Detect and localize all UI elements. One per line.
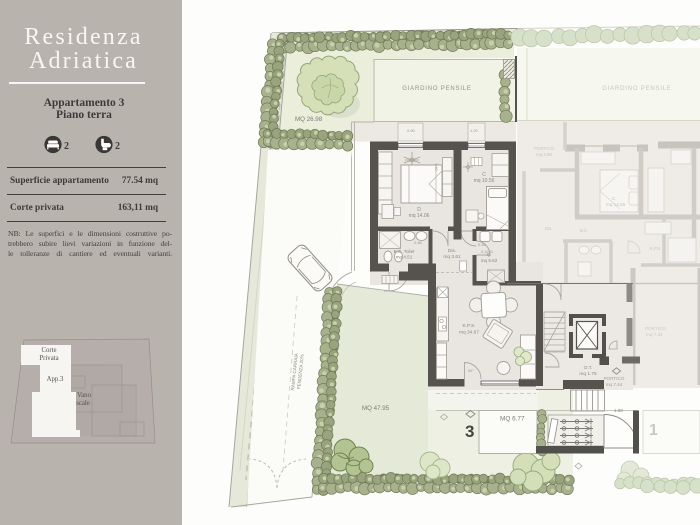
svg-text:2.10 G.: 2.10 G. <box>481 249 494 254</box>
svg-text:0.46: 0.46 <box>414 240 423 245</box>
svg-text:mq 1.75: mq 1.75 <box>579 371 597 377</box>
svg-text:K.P.S.: K.P.S. <box>463 323 476 329</box>
svg-text:mq 4.51: mq 4.51 <box>396 255 413 260</box>
svg-text:2: 2 <box>115 141 120 152</box>
svg-text:PORTICO: PORTICO <box>645 326 666 331</box>
svg-text:mq 3.61: mq 3.61 <box>443 254 461 260</box>
svg-text:PORTICO: PORTICO <box>604 376 625 381</box>
svg-text:1.50: 1.50 <box>614 408 623 413</box>
svg-text:MQ 47.95: MQ 47.95 <box>362 405 390 412</box>
svg-text:Corte: Corte <box>41 347 56 354</box>
svg-text:mq 10.56: mq 10.56 <box>474 178 495 184</box>
svg-text:1: 1 <box>649 422 658 439</box>
svg-text:3.40: 3.40 <box>434 163 439 172</box>
svg-text:t.t.: t.t. <box>384 289 388 293</box>
svg-text:B.C. Toilet: B.C. Toilet <box>394 249 416 254</box>
svg-text:mq 34.67: mq 34.67 <box>459 330 479 336</box>
svg-text:O.T.: O.T. <box>584 365 593 371</box>
svg-text:MQ 6.77: MQ 6.77 <box>500 416 525 423</box>
svg-text:K.P.S.: K.P.S. <box>650 246 661 251</box>
svg-text:PORTICO: PORTICO <box>534 146 555 151</box>
svg-text:Dis.: Dis. <box>448 248 456 254</box>
svg-text:90°: 90° <box>468 369 474 373</box>
svg-text:mq 7.44: mq 7.44 <box>606 382 623 387</box>
svg-text:mq 14.06: mq 14.06 <box>409 213 430 219</box>
svg-text:3: 3 <box>465 422 474 441</box>
svg-text:mq 3.98: mq 3.98 <box>536 152 552 157</box>
svg-text:mq 5.62: mq 5.62 <box>481 258 498 263</box>
svg-text:GIARDINO PENSILE: GIARDINO PENSILE <box>602 86 671 92</box>
svg-text:scale: scale <box>76 400 90 407</box>
svg-text:GIARDINO PENSILE: GIARDINO PENSILE <box>402 86 471 92</box>
svg-text:0.46: 0.46 <box>478 242 487 247</box>
svg-text:Vano: Vano <box>77 392 92 399</box>
svg-text:C.: C. <box>612 196 617 201</box>
svg-text:Privata: Privata <box>39 355 58 362</box>
svg-text:mq 14.26: mq 14.26 <box>606 202 626 207</box>
svg-text:mq 7.44: mq 7.44 <box>646 332 663 337</box>
svg-text:Dis.: Dis. <box>545 226 552 231</box>
svg-text:2: 2 <box>64 141 69 152</box>
svg-text:App.3: App.3 <box>47 376 64 383</box>
svg-text:MQ 26.98: MQ 26.98 <box>295 116 323 123</box>
svg-text:1.20: 1.20 <box>470 128 479 133</box>
svg-text:0.90: 0.90 <box>407 128 416 133</box>
svg-text:B.C.: B.C. <box>580 228 588 233</box>
